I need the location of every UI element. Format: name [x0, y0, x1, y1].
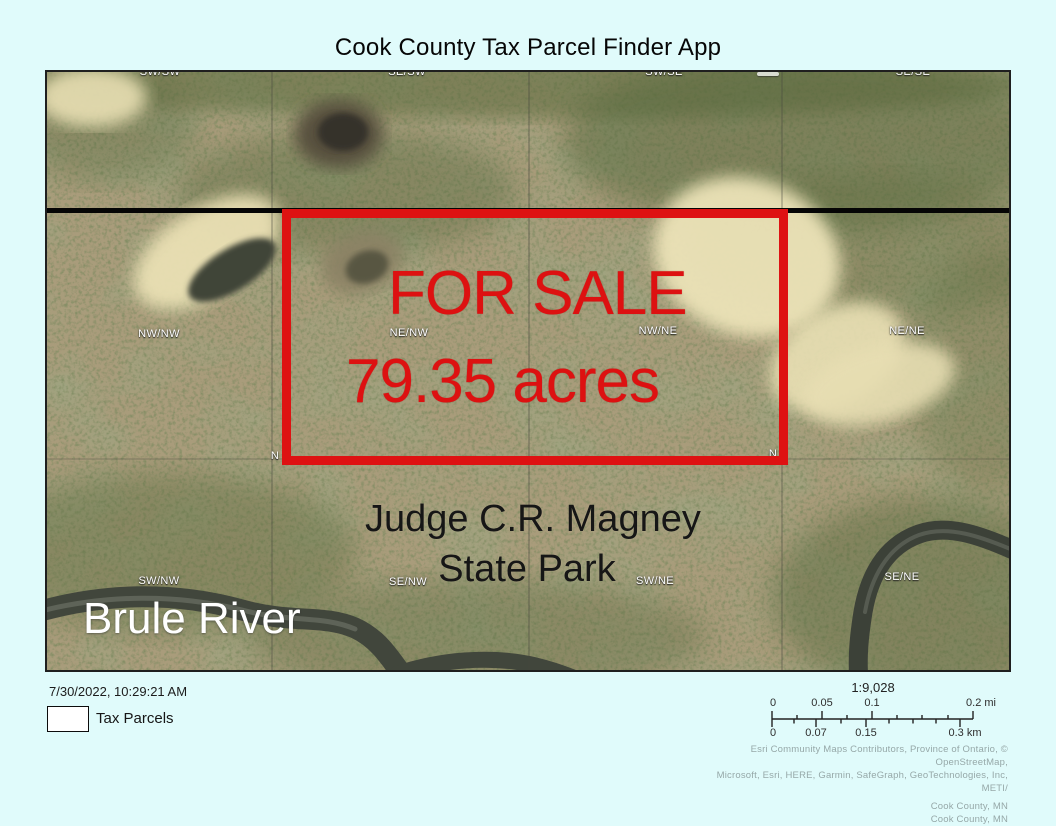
legend-label: Tax Parcels [96, 710, 174, 727]
attribution-county1: Cook County, MN [690, 800, 1008, 813]
pond-north-core [318, 113, 368, 151]
section-label-sw-sw: SW/SW [140, 70, 181, 78]
section-label-se-ne: SE/NE [884, 571, 919, 583]
for-sale-parcel-outline [282, 209, 788, 465]
scale-km-015: 0.15 [849, 727, 883, 739]
attribution-line1: Esri Community Maps Contributors, Provin… [690, 743, 1008, 769]
cut-label-fragment [757, 72, 779, 76]
state-park-label-line1: Judge C.R. Magney [365, 494, 689, 544]
brule-river-label: Brule River [83, 594, 301, 644]
state-park-label-line2: State Park [365, 544, 689, 594]
page-title: Cook County Tax Parcel Finder App [0, 34, 1056, 62]
tax-parcels-swatch [47, 706, 89, 732]
scale-km-007: 0.07 [799, 727, 833, 739]
section-label-se-se: SE/SE [896, 70, 930, 78]
map-canvas[interactable]: SW/SW SE/SW SW/SE SE/SE NW/NW NE/NW NW/N… [45, 70, 1011, 672]
scale-km-03: 0.3 km [935, 727, 995, 739]
section-label-sw-se: SW/SE [645, 70, 682, 78]
export-timestamp: 7/30/2022, 10:29:21 AM [49, 684, 187, 699]
section-label-sw-nw: SW/NW [138, 575, 179, 587]
section-label-nw-nw: NW/NW [138, 328, 180, 340]
acreage-text: 79.35 acres [346, 346, 659, 417]
attribution-line2: Microsoft, Esri, HERE, Garmin, SafeGraph… [690, 769, 1008, 795]
attribution-county2: Cook County, MN [690, 813, 1008, 826]
section-label-partial-left: N [271, 450, 279, 462]
scale-km-0: 0 [768, 727, 778, 739]
scale-bar: 1:9,028 0 0.05 0.1 0.2 mi 0 0.07 0.15 0.… [765, 680, 1015, 746]
section-label-se-sw: SE/SW [388, 70, 425, 78]
for-sale-text: FOR SALE [388, 258, 687, 329]
state-park-label: Judge C.R. Magney State Park [365, 494, 689, 594]
section-label-ne-ne: NE/NE [889, 325, 925, 337]
map-attribution: Esri Community Maps Contributors, Provin… [690, 743, 1008, 826]
